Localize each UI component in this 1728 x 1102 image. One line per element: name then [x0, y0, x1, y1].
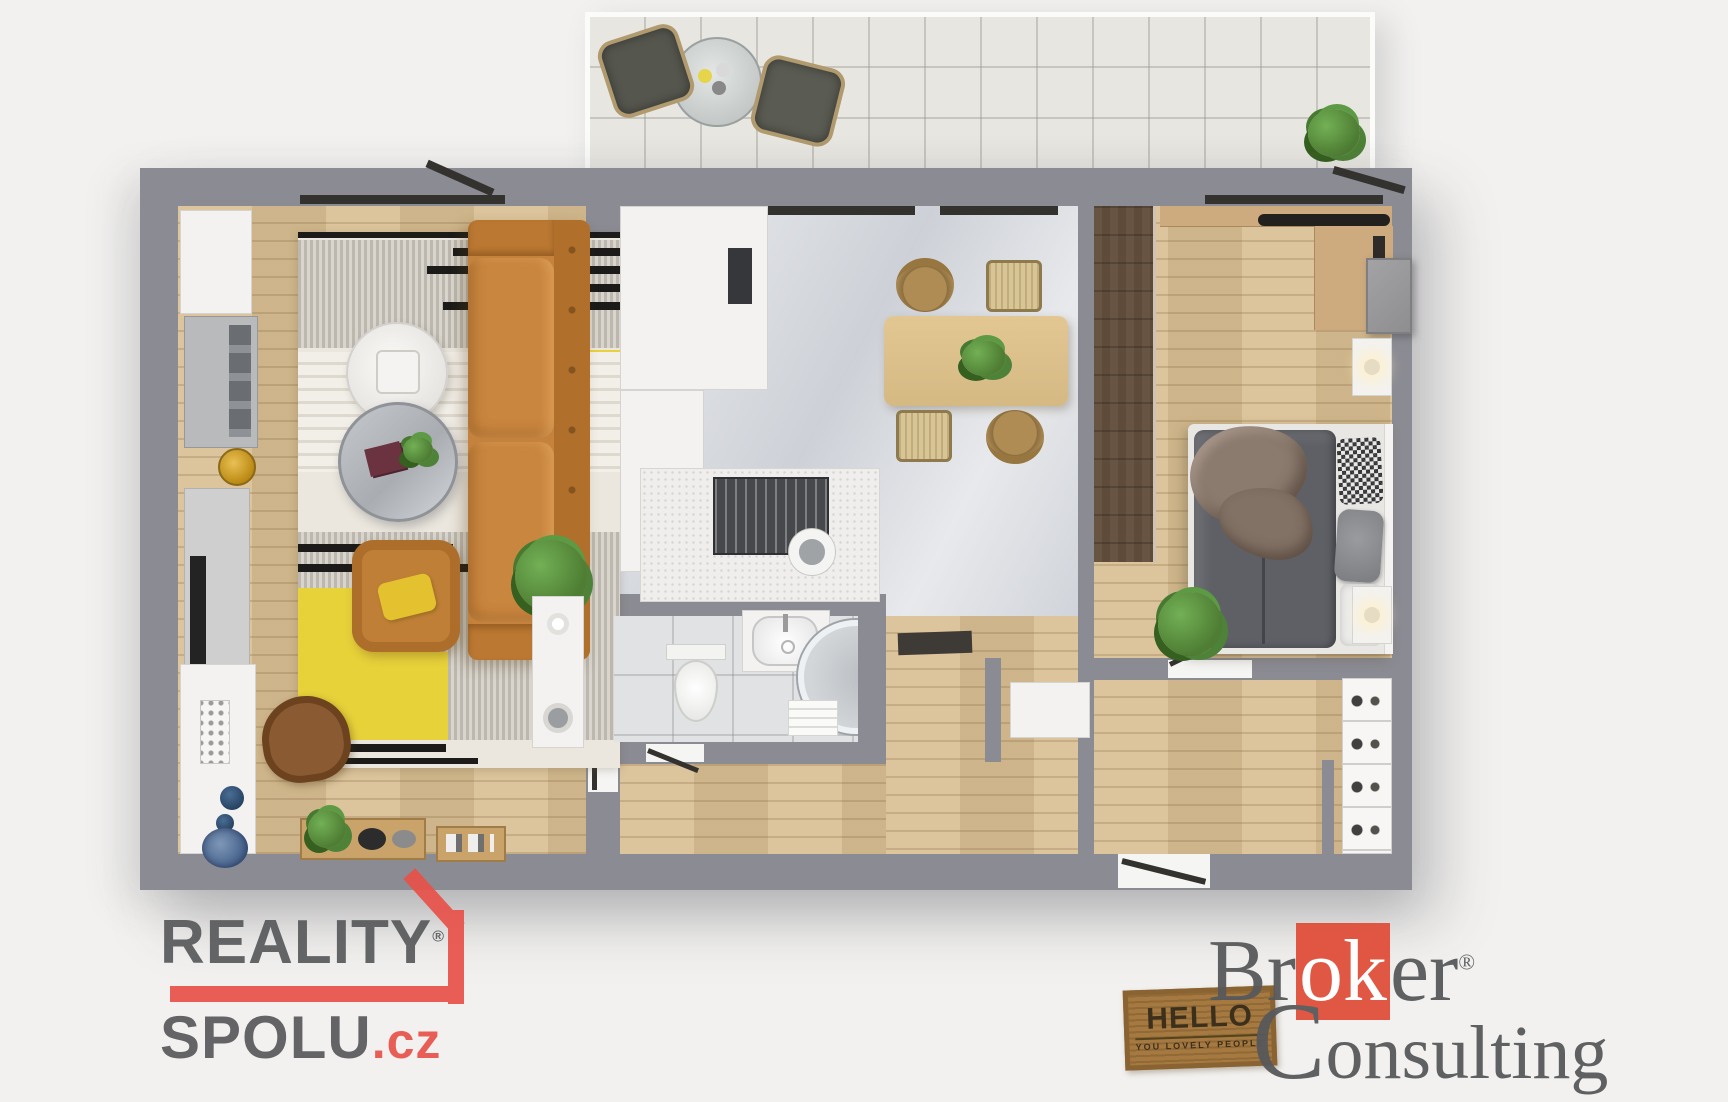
bedside-lamp	[1364, 607, 1380, 623]
desk-vase-large	[220, 786, 244, 810]
washing-machine-door	[543, 703, 573, 733]
kitchen-sink-faucet	[789, 529, 835, 575]
logo-underline	[170, 986, 464, 1002]
entry-cabinet	[1010, 682, 1090, 738]
bedroom-plant	[1158, 592, 1222, 656]
gold-bowl	[218, 448, 256, 486]
wall-entry-divider	[1322, 760, 1334, 854]
sink-drain	[781, 640, 795, 654]
dining-chair-rect-top	[986, 260, 1042, 312]
wall-bathroom-bottom	[586, 742, 886, 764]
bedroom-bench	[1366, 258, 1412, 334]
book	[364, 441, 406, 477]
reality-spolu-logo: REALITY® SPOLU.cz	[160, 912, 600, 1080]
sofa-armrest-top	[468, 220, 554, 256]
media-cabinet-gray	[184, 316, 258, 448]
utility-unit	[532, 596, 584, 748]
window-kitchen-2	[940, 206, 1058, 215]
hydrangea-flowers	[202, 828, 248, 868]
towel-stack	[788, 700, 838, 736]
pillow-checkered	[1336, 437, 1383, 505]
table-plant-sprig	[403, 437, 433, 463]
toilet-paper-roll	[547, 613, 569, 635]
dining-chair-round-bottom	[986, 410, 1044, 464]
dining-chair-round-top	[896, 258, 954, 312]
planter-bowl-dark	[358, 828, 386, 850]
cz-suffix: .cz	[372, 1013, 442, 1069]
consulting-text: Consulting	[1252, 997, 1628, 1086]
planter-plant	[308, 810, 346, 848]
broker-consulting-logo: Broker® Consulting	[1208, 932, 1628, 1082]
spolu-word: SPOLU	[160, 1004, 372, 1071]
planter-items	[446, 834, 494, 852]
nightstand-top	[1352, 338, 1392, 396]
floorplan-scene: HELLO YOU LOVELY PEOPLE REALITY® SPOLU.c…	[0, 0, 1728, 1080]
wall-kitchen-bedroom	[1078, 204, 1094, 680]
wall-bathroom-right	[858, 594, 886, 764]
coffee-table-mirror	[338, 402, 458, 522]
kitchen-island	[640, 468, 880, 602]
wall-hall-divider	[985, 658, 1001, 762]
dining-chair-rect-bottom	[896, 410, 952, 462]
bedside-lamp	[1364, 359, 1380, 375]
planter-bowl-gray	[392, 830, 416, 848]
media-cabinet-tall	[180, 210, 252, 314]
oven-handle	[728, 248, 752, 304]
toilet-tank	[666, 644, 726, 660]
planter-box-small	[436, 826, 506, 862]
planter-box-long	[300, 818, 426, 860]
cabinet-glass-panels	[229, 325, 251, 437]
balcony-floor	[585, 12, 1375, 170]
desk-chair-bar	[1258, 214, 1390, 226]
balcony-plant	[1308, 109, 1360, 157]
table-plates	[698, 69, 712, 83]
sink-faucet	[783, 614, 788, 632]
registered-mark: ®	[1458, 950, 1475, 975]
door-opening-bedroom	[1168, 660, 1252, 678]
balcony-chair-right	[748, 52, 849, 150]
throw-pillow-yellow	[376, 572, 438, 622]
window-bedroom	[1205, 195, 1383, 204]
kitchen-doormat	[898, 631, 973, 656]
rug-pattern	[390, 652, 448, 740]
dining-table	[884, 316, 1068, 406]
registered-mark: ®	[432, 928, 445, 945]
armchair	[352, 540, 460, 652]
pillow-gray	[1334, 508, 1385, 583]
shoe-cabinet	[1342, 678, 1392, 854]
nightstand-bottom	[1352, 586, 1392, 644]
reality-word: REALITY	[160, 908, 432, 977]
sofa-cushion	[468, 258, 554, 438]
window-living	[300, 195, 505, 204]
spolu-text: SPOLU.cz	[160, 1008, 600, 1068]
wardrobe	[1094, 206, 1156, 562]
table-decor	[376, 350, 420, 394]
dining-table-plant	[962, 340, 1006, 376]
reality-text: REALITY®	[160, 912, 600, 974]
desk-phone	[200, 700, 230, 764]
